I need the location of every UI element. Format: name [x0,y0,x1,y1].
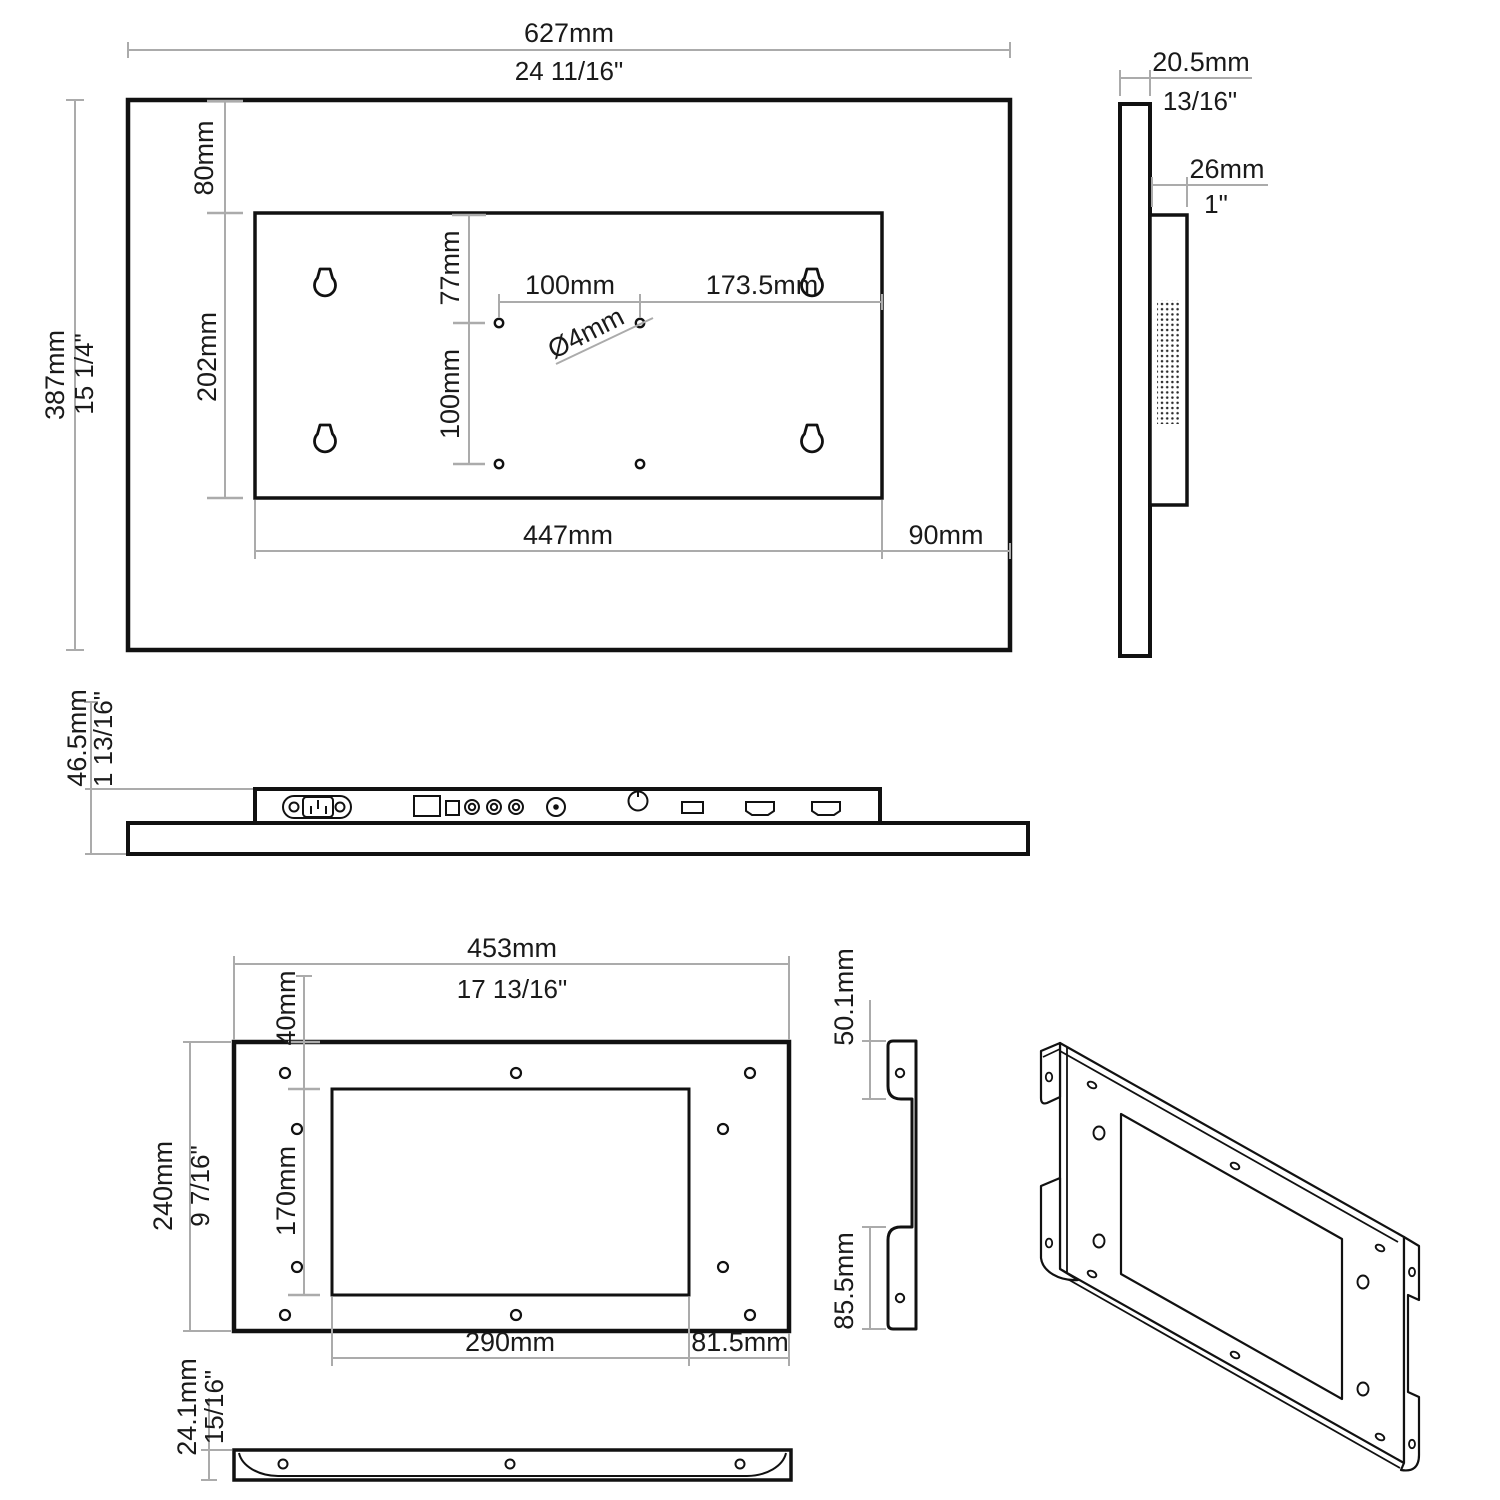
bracket-front-view [234,1042,789,1331]
dim-bracket-top-offset: 40mm [271,970,301,1045]
dim-front-height-mm: 387mm [40,330,70,420]
vent-mesh [1157,300,1181,424]
av-rca-ports [465,800,523,814]
bracket-side-view [888,1041,916,1329]
side-panel-profile [1120,104,1150,656]
keyhole-slot-top-left [315,269,336,296]
usb-port-small [446,801,459,815]
bracket-side-hole-top [896,1069,904,1077]
side-view [1120,104,1187,656]
dim-bracket-width-in: 17 13/16" [457,974,567,1004]
front-view [128,100,1010,650]
keyhole-slot-bottom-left [315,425,336,452]
dim-bracket-height-in: 9 7/16" [185,1145,215,1227]
dim-front-hole-horizontal: 100mm [525,270,615,300]
dim-bracket-width-mm: 453mm [467,933,557,963]
dim-front-height-in: 15 1/4" [69,333,99,415]
dim-strip-height-in: 15/16" [199,1370,229,1444]
ac-power-inlet [283,796,351,818]
hdmi-port-2 [812,802,840,815]
audio-jack [547,798,565,816]
dim-bracket-opening-width: 290mm [465,1327,555,1357]
dim-front-width-mm: 627mm [524,18,614,48]
dim-bottom-height-in: 1 13/16" [88,691,118,787]
usb-port [682,802,703,813]
dim-side-depth-in: 1" [1204,189,1228,219]
dim-side-depth-mm: 26mm [1189,154,1264,184]
hdmi-port-1 [746,802,774,815]
dim-front-width-in: 24 11/16" [515,56,624,86]
bracket-side-profile [888,1041,916,1329]
dim-bracket-right-offset: 81.5mm [691,1327,789,1357]
bracket-side-hole-bottom [896,1294,904,1302]
dim-side-thickness-in: 13/16" [1163,86,1237,116]
bracket-isometric-view [1041,1043,1419,1470]
lan-port [414,796,440,816]
dim-bracket-opening-height: 170mm [271,1146,301,1236]
drawing-svg: 627mm 24 11/16" 387mm 15 1/4" 80mm 202mm… [0,0,1500,1500]
bottom-view [128,789,1028,854]
dim-bracket-height-mm: 240mm [148,1141,178,1231]
antenna-connector [629,790,648,811]
bracket-bottom-view [234,1450,791,1480]
dim-side-thickness-mm: 20.5mm [1152,47,1250,77]
dim-front-hole-top: 77mm [435,230,465,305]
dim-bracket-top-flange: 50.1mm [829,948,859,1046]
technical-drawing-monitor-dimensions: 627mm 24 11/16" 387mm 15 1/4" 80mm 202mm… [0,0,1500,1500]
bracket-side-dimensions [862,1000,886,1329]
dim-bracket-bottom-flange: 85.5mm [829,1232,859,1330]
dim-front-hole-vertical: 100mm [435,349,465,439]
dim-front-box-height: 202mm [192,312,222,402]
bottom-front-bezel [128,823,1028,854]
bracket-opening [332,1089,689,1295]
dim-front-box-width: 447mm [523,520,613,550]
dim-front-box-right: 90mm [908,520,983,550]
dim-strip-height-mm: 24.1mm [172,1358,202,1456]
keyhole-slot-bottom-right [802,425,823,452]
dim-front-top-offset: 80mm [189,120,219,195]
dim-front-hole-right: 173.5mm [706,270,819,300]
